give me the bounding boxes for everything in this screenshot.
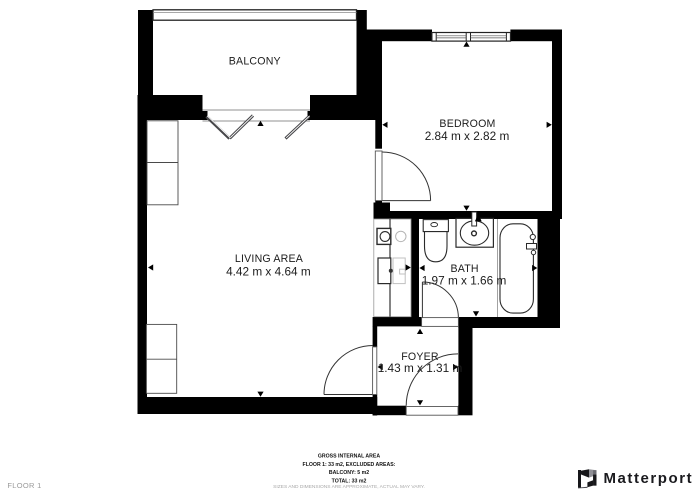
svg-text:GROSS INTERNAL AREA: GROSS INTERNAL AREA (318, 453, 381, 459)
svg-text:FLOOR 1: FLOOR 1 (7, 481, 41, 490)
svg-text:Matterport: Matterport (604, 470, 694, 487)
svg-text:1.97 m x 1.66 m: 1.97 m x 1.66 m (422, 274, 507, 288)
svg-text:FLOOR 1: 33 m2, EXCLUDED AREAS: FLOOR 1: 33 m2, EXCLUDED AREAS: (303, 462, 396, 468)
svg-text:SIZES AND DIMENSIONS ARE APPRO: SIZES AND DIMENSIONS ARE APPROXIMATE, AC… (273, 484, 425, 490)
svg-text:LIVING AREA: LIVING AREA (235, 253, 304, 265)
svg-text:2.84 m x 2.82 m: 2.84 m x 2.82 m (425, 129, 510, 143)
svg-text:BALCONY: 5 m2: BALCONY: 5 m2 (329, 470, 369, 476)
svg-text:BALCONY: BALCONY (229, 56, 281, 68)
svg-text:4.42 m x 4.64 m: 4.42 m x 4.64 m (226, 265, 311, 279)
svg-text:TOTAL: 33 m2: TOTAL: 33 m2 (332, 478, 367, 484)
svg-text:1.43 m x 1.31 m: 1.43 m x 1.31 m (378, 361, 463, 375)
